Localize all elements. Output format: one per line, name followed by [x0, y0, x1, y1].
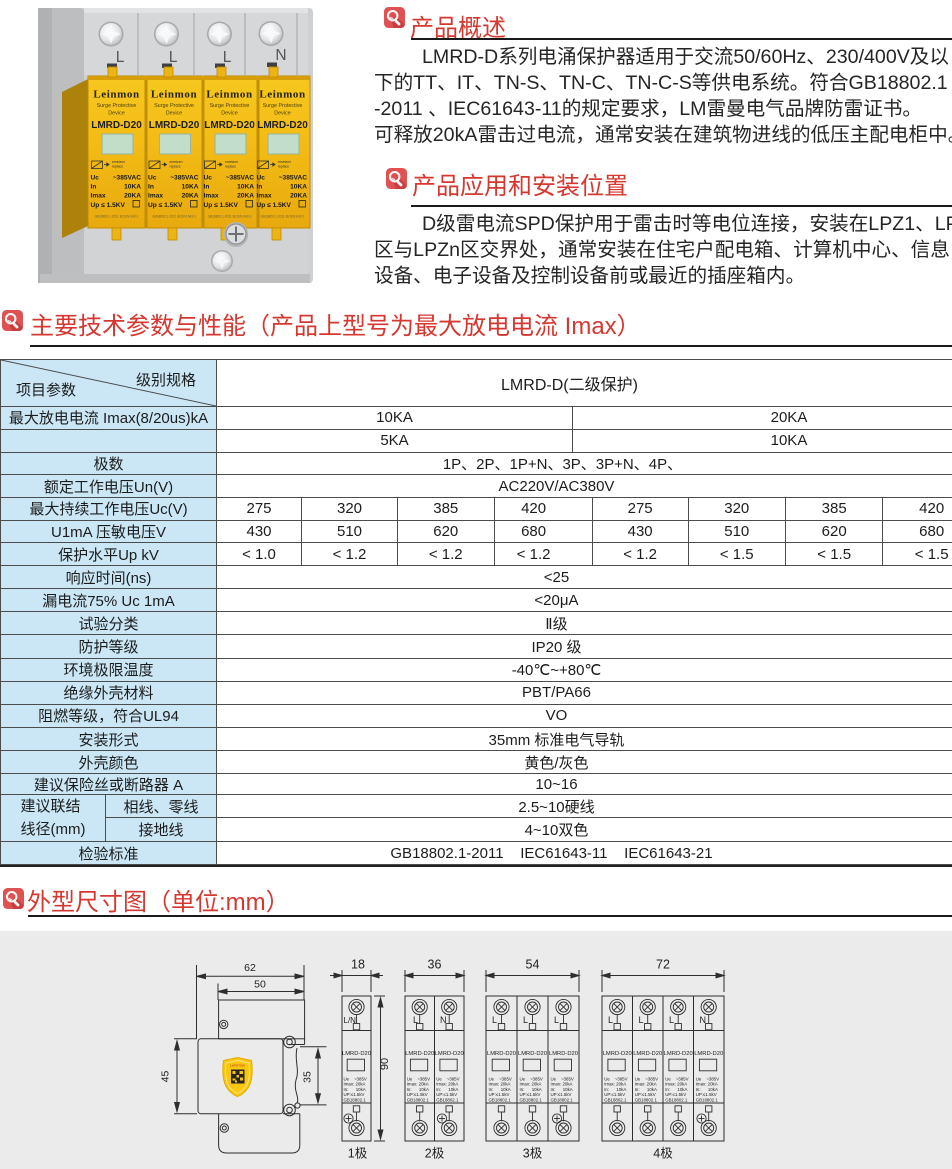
svg-text:Up ≤ 1.5KV: Up ≤ 1.5KV	[91, 202, 126, 209]
svg-text:62: 62	[244, 962, 256, 974]
svg-text:54: 54	[526, 958, 540, 972]
svg-text:emetzen: emetzen	[112, 160, 125, 164]
svg-text:L: L	[413, 1015, 418, 1025]
svg-text:45: 45	[160, 1071, 172, 1083]
svg-text:Device: Device	[108, 111, 124, 117]
svg-text:In: In	[91, 184, 97, 191]
svg-text:L: L	[523, 1015, 528, 1025]
svg-text:3极: 3极	[523, 1147, 543, 1161]
svg-text:~385VAC: ~385VAC	[113, 175, 142, 182]
svg-text:L: L	[554, 1015, 559, 1025]
svg-text:L/N: L/N	[344, 1016, 357, 1025]
svg-text:N: N	[700, 1015, 707, 1025]
svg-text:Imax: Imax	[91, 193, 106, 200]
svg-text:Surge Protective: Surge Protective	[97, 103, 137, 109]
svg-text:N: N	[440, 1015, 447, 1025]
svg-text:2极: 2极	[425, 1147, 445, 1161]
svg-text:1极: 1极	[348, 1147, 368, 1161]
svg-text:L: L	[608, 1015, 613, 1025]
svg-text:72: 72	[656, 958, 670, 972]
svg-text:replace: replace	[112, 165, 123, 169]
svg-text:Leinmon: Leinmon	[230, 1063, 245, 1068]
svg-text:20KA: 20KA	[124, 193, 141, 200]
svg-text:50: 50	[254, 979, 266, 991]
svg-text:Leinmon: Leinmon	[93, 89, 139, 101]
svg-text:Uc: Uc	[91, 175, 100, 182]
svg-text:4极: 4极	[653, 1147, 673, 1161]
svg-text:35: 35	[302, 1071, 314, 1083]
svg-text:L: L	[492, 1015, 497, 1025]
svg-text:36: 36	[428, 958, 442, 972]
svg-text:18: 18	[351, 958, 365, 972]
svg-text:LMRD-D20: LMRD-D20	[91, 120, 142, 131]
svg-text:L: L	[639, 1015, 644, 1025]
svg-text:90: 90	[379, 1058, 391, 1070]
svg-text:GB18802.1-2011 IECEN 643-1: GB18802.1-2011 IECEN 643-1	[95, 215, 139, 219]
svg-text:10KA: 10KA	[124, 184, 141, 191]
svg-text:L: L	[669, 1015, 674, 1025]
